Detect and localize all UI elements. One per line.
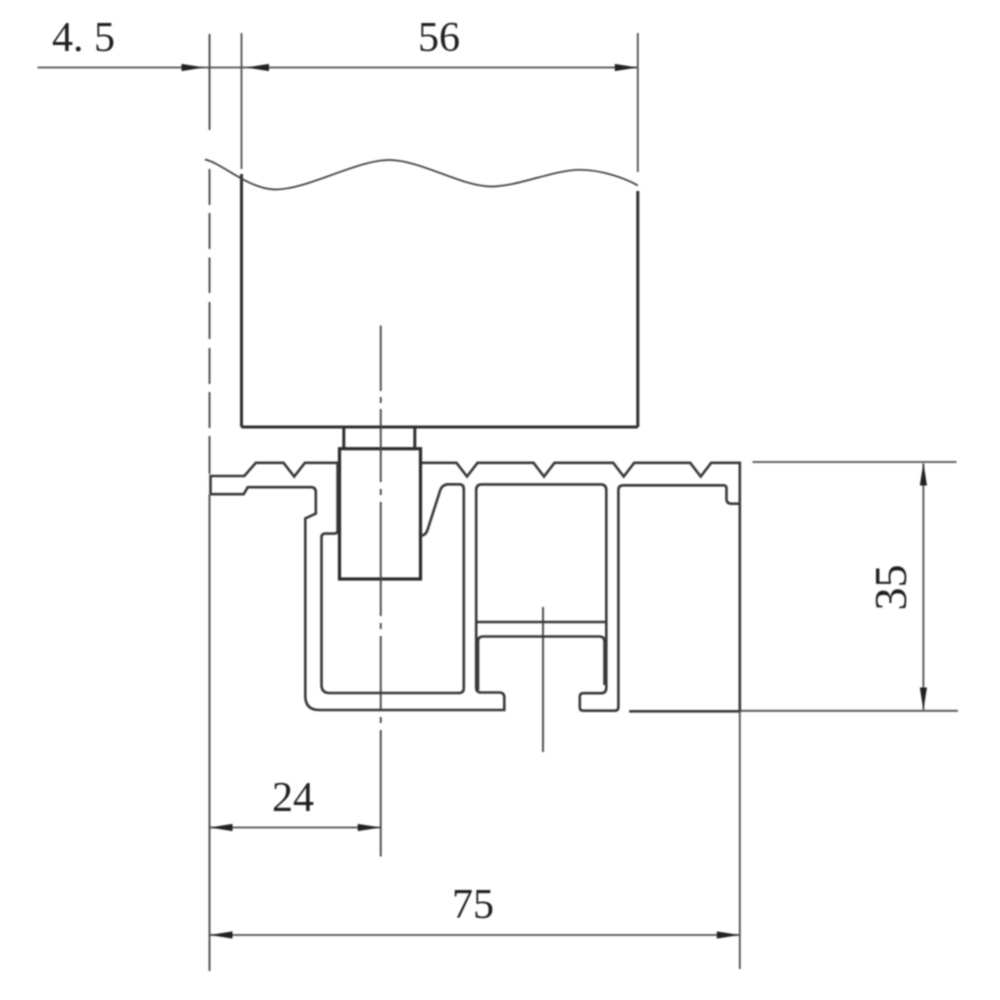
- svg-text:4. 5: 4. 5: [52, 15, 115, 61]
- svg-text:24: 24: [272, 775, 314, 821]
- svg-text:56: 56: [418, 15, 460, 61]
- svg-text:35: 35: [865, 565, 916, 611]
- svg-text:75: 75: [452, 882, 494, 928]
